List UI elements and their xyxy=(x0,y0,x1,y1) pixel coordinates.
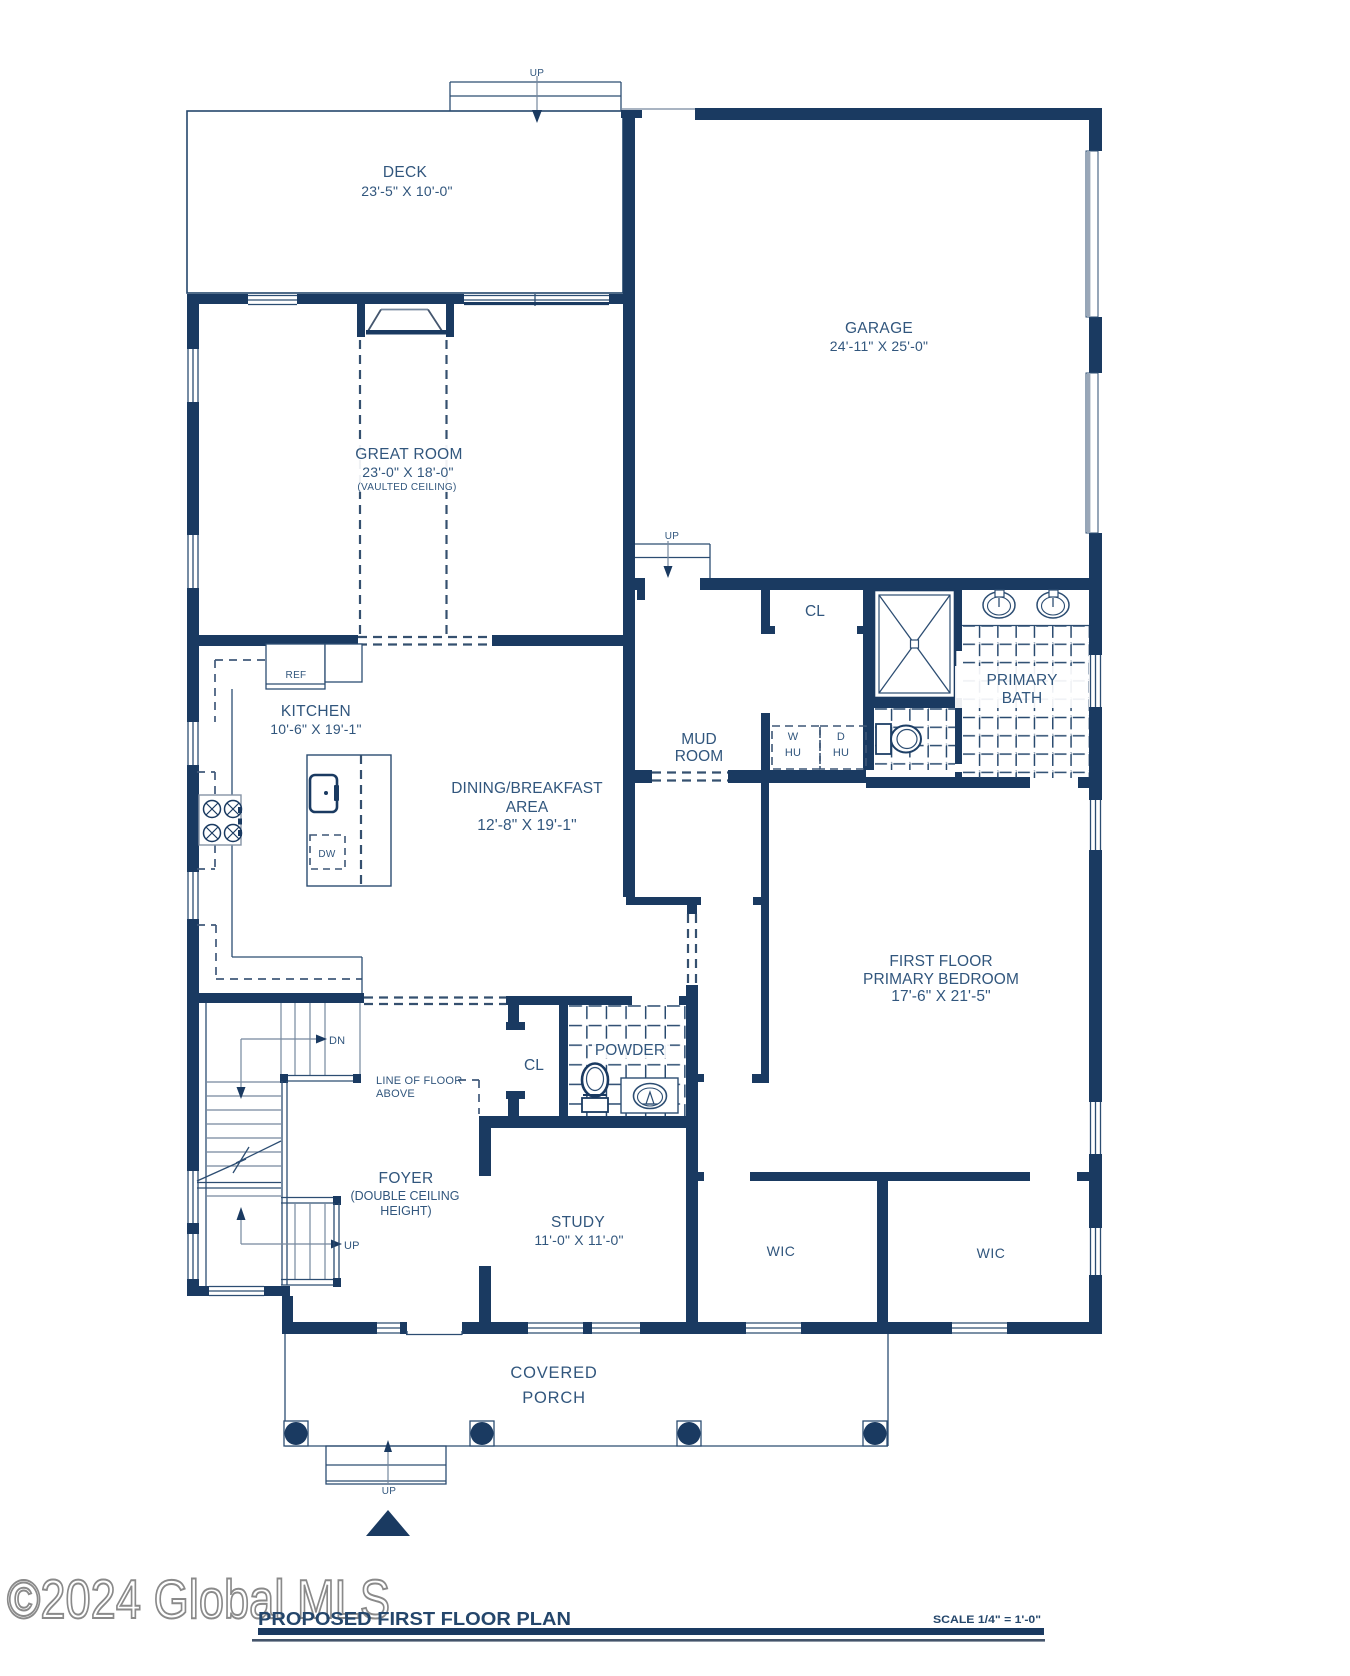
svg-text:STUDY: STUDY xyxy=(551,1214,605,1231)
svg-text:KITCHEN: KITCHEN xyxy=(281,703,351,720)
svg-text:10'-6" X 19'-1": 10'-6" X 19'-1" xyxy=(270,721,361,737)
svg-text:REF: REF xyxy=(286,670,307,681)
svg-text:UP: UP xyxy=(344,1240,360,1252)
svg-text:11'-0" X 11'-0": 11'-0" X 11'-0" xyxy=(534,1232,623,1248)
svg-text:MUD: MUD xyxy=(681,731,717,748)
svg-text:HU: HU xyxy=(833,747,849,759)
svg-text:DW: DW xyxy=(318,849,336,860)
svg-text:DECK: DECK xyxy=(383,164,428,181)
svg-text:AREA: AREA xyxy=(506,799,549,816)
svg-text:ROOM: ROOM xyxy=(675,748,724,765)
svg-text:FOYER: FOYER xyxy=(379,1170,434,1187)
svg-text:CL: CL xyxy=(524,1057,544,1074)
svg-text:LINE OF FLOOR: LINE OF FLOOR xyxy=(376,1075,462,1087)
svg-text:UP: UP xyxy=(665,531,680,542)
svg-text:12'-8" X 19'-1": 12'-8" X 19'-1" xyxy=(477,817,576,834)
svg-text:D: D xyxy=(837,731,845,743)
svg-text:UP: UP xyxy=(382,1486,397,1497)
svg-text:SCALE 1/4" = 1'-0": SCALE 1/4" = 1'-0" xyxy=(933,1614,1041,1626)
svg-text:24'-11" X 25'-0": 24'-11" X 25'-0" xyxy=(830,338,928,354)
svg-text:CL: CL xyxy=(805,603,825,620)
svg-text:HEIGHT): HEIGHT) xyxy=(380,1204,431,1218)
svg-text:COVERED: COVERED xyxy=(510,1364,597,1382)
svg-text:UP: UP xyxy=(530,68,545,79)
svg-text:(VAULTED CEILING): (VAULTED CEILING) xyxy=(357,482,456,493)
svg-text:DINING/BREAKFAST: DINING/BREAKFAST xyxy=(451,780,603,797)
svg-text:23'-0" X 18'-0": 23'-0" X 18'-0" xyxy=(362,464,453,480)
svg-text:PRIMARY: PRIMARY xyxy=(986,672,1057,689)
svg-text:GREAT ROOM: GREAT ROOM xyxy=(355,446,463,463)
svg-text:DN: DN xyxy=(329,1035,345,1047)
svg-text:ABOVE: ABOVE xyxy=(376,1088,415,1100)
svg-text:17'-6" X 21'-5": 17'-6" X 21'-5" xyxy=(891,988,990,1005)
svg-text:BATH: BATH xyxy=(1002,690,1043,707)
svg-text:PORCH: PORCH xyxy=(522,1389,586,1407)
svg-text:POWDER: POWDER xyxy=(595,1042,665,1059)
svg-text:GARAGE: GARAGE xyxy=(845,320,913,337)
svg-text:FIRST FLOOR: FIRST FLOOR xyxy=(889,953,992,970)
svg-text:23'-5" X 10'-0": 23'-5" X 10'-0" xyxy=(361,183,452,199)
svg-text:PRIMARY BEDROOM: PRIMARY BEDROOM xyxy=(863,971,1019,988)
svg-text:(DOUBLE CEILING: (DOUBLE CEILING xyxy=(350,1189,459,1203)
svg-text:WIC: WIC xyxy=(767,1243,796,1259)
svg-text:W: W xyxy=(788,731,799,743)
svg-text:HU: HU xyxy=(785,747,801,759)
svg-text:PROPOSED FIRST FLOOR PLAN: PROPOSED FIRST FLOOR PLAN xyxy=(258,1608,571,1629)
svg-text:WIC: WIC xyxy=(977,1245,1006,1261)
